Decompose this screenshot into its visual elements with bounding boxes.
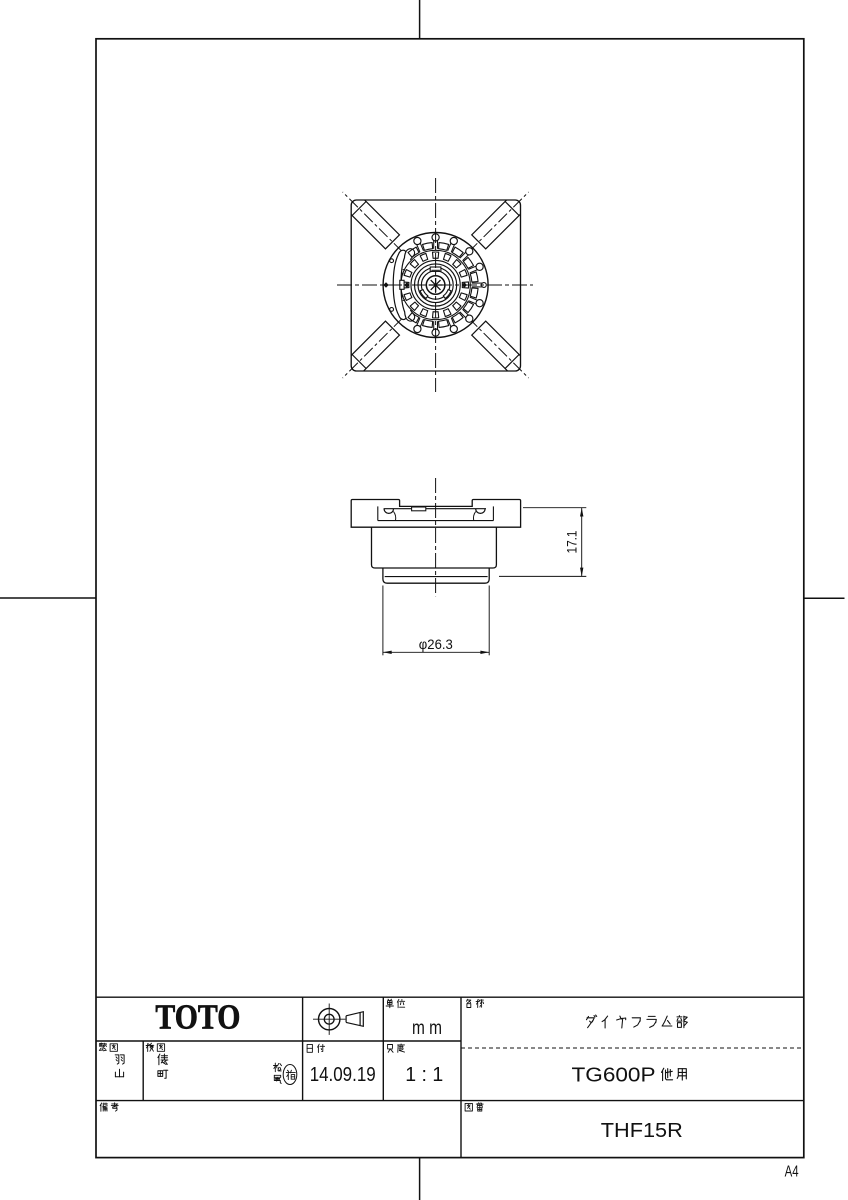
svg-text:A4: A4 (785, 1163, 799, 1180)
svg-text:THF15R: THF15R (601, 1120, 683, 1142)
svg-text:17.1: 17.1 (564, 531, 579, 554)
svg-text:TOTO: TOTO (155, 998, 240, 1037)
svg-text:1 : 1: 1 : 1 (405, 1064, 443, 1086)
svg-text:φ26.3: φ26.3 (419, 636, 453, 652)
svg-text:m m: m m (412, 1018, 442, 1039)
svg-text:14.09.19: 14.09.19 (310, 1063, 376, 1086)
svg-text:TG600P: TG600P (572, 1064, 656, 1086)
